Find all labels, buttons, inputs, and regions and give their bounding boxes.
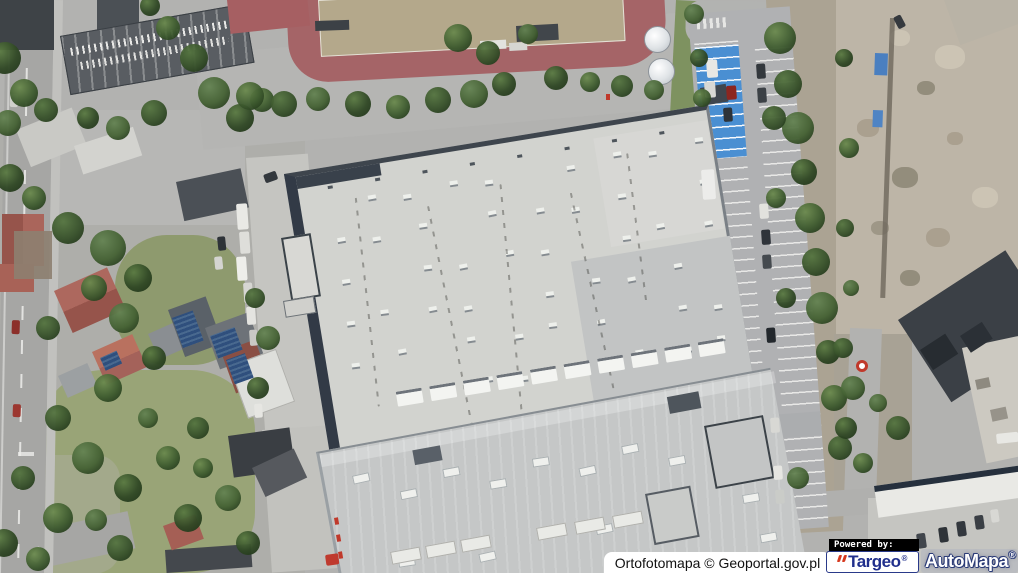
roof-vent <box>621 443 639 455</box>
car <box>773 465 783 480</box>
targeo-logo-text: Targeo <box>848 552 900 572</box>
car <box>766 327 776 343</box>
roof-vent <box>517 154 522 158</box>
roof-vent <box>352 472 371 484</box>
tree <box>795 203 825 233</box>
rubble-pile <box>926 228 950 247</box>
large-skylight <box>463 377 491 396</box>
tree <box>34 98 58 122</box>
car <box>770 417 780 433</box>
bus <box>315 20 349 31</box>
roof-skylight <box>342 279 351 286</box>
car <box>236 203 249 230</box>
tree <box>141 100 167 126</box>
roof-skylight <box>549 322 558 329</box>
tree <box>787 467 809 489</box>
tree <box>245 288 265 308</box>
storage-tank <box>644 26 671 53</box>
tree <box>236 531 260 555</box>
tree <box>802 248 830 276</box>
roof-skylight <box>515 334 524 341</box>
tree <box>853 453 873 473</box>
red-marker <box>606 94 610 100</box>
tree <box>839 138 859 158</box>
tree <box>77 107 99 129</box>
tree <box>187 417 209 439</box>
tree <box>11 466 35 490</box>
roof-vent <box>564 147 569 151</box>
tree <box>52 212 84 244</box>
car <box>254 403 263 418</box>
roof-skylight <box>622 235 631 242</box>
map-attribution: Ortofotomapa © Geoportal.gov.pl <box>604 552 831 573</box>
tree <box>236 82 264 110</box>
tree <box>869 394 887 412</box>
car <box>325 553 339 566</box>
car <box>706 59 718 78</box>
tree <box>85 509 107 531</box>
tree <box>776 288 796 308</box>
tree <box>791 159 817 185</box>
rubble-pile <box>972 187 998 208</box>
roof-skylight <box>541 249 550 256</box>
car <box>756 63 766 79</box>
roof-vent <box>375 178 380 182</box>
roof-skylight <box>449 180 458 187</box>
car <box>757 87 767 103</box>
tree <box>180 44 208 72</box>
car <box>726 85 737 100</box>
roof-vent <box>422 170 427 174</box>
automapa-registered-mark: ® <box>1009 550 1015 560</box>
tree <box>174 504 202 532</box>
tree <box>156 16 180 40</box>
roof-skylight <box>337 237 346 244</box>
tree <box>764 22 796 54</box>
tree <box>492 72 516 96</box>
roof-skylight <box>347 321 356 328</box>
tree <box>142 346 166 370</box>
roof-vent <box>759 531 777 543</box>
car <box>13 404 21 417</box>
car <box>990 509 1000 523</box>
tree <box>544 66 568 90</box>
roof-skylight <box>424 265 433 272</box>
tree <box>693 89 711 107</box>
tree <box>10 79 38 107</box>
rubble-pile <box>900 270 920 286</box>
roof-skylight <box>419 223 428 230</box>
roof-vent <box>400 488 418 500</box>
car <box>217 236 226 251</box>
roof-stain <box>355 198 380 407</box>
roof-skylight <box>398 348 407 355</box>
tree <box>460 80 488 108</box>
roof-vent <box>532 456 550 467</box>
car <box>246 306 256 325</box>
targeo-logo[interactable]: Targeo® <box>826 551 919 573</box>
tree <box>107 535 133 561</box>
roof-skylight <box>714 304 723 311</box>
rubble-pile <box>935 45 965 69</box>
tree <box>835 49 853 67</box>
tree <box>386 95 410 119</box>
tree <box>425 87 451 113</box>
tree <box>843 280 859 296</box>
car <box>12 320 20 334</box>
blue-dumpster <box>872 110 883 127</box>
roof-skylight <box>695 137 704 144</box>
tree <box>109 303 139 333</box>
car <box>236 256 248 281</box>
tree <box>138 408 158 428</box>
roof-skylight <box>648 151 657 158</box>
tree <box>690 49 708 67</box>
tree <box>774 70 802 98</box>
tree <box>256 326 280 350</box>
tree <box>580 72 600 92</box>
roof-skylight <box>613 151 622 158</box>
tree <box>247 377 269 399</box>
tree <box>886 416 910 440</box>
roof-skylight <box>592 278 601 285</box>
car <box>775 489 785 504</box>
roof-skylight <box>380 309 389 316</box>
tree <box>611 75 633 97</box>
large-skylight <box>429 382 457 401</box>
car <box>762 254 772 269</box>
tree <box>644 80 664 100</box>
roof-skylight <box>618 193 627 200</box>
car <box>723 107 733 122</box>
car <box>974 515 985 530</box>
car <box>214 256 223 270</box>
tree <box>140 0 160 16</box>
tree <box>828 436 852 460</box>
roof-vent <box>578 465 597 477</box>
rubble-pile <box>917 81 935 95</box>
roof-skylight <box>459 263 468 270</box>
targeo-registered-mark: ® <box>902 554 907 563</box>
tree <box>841 376 865 400</box>
rubble-pile <box>892 167 918 188</box>
tree <box>518 24 538 44</box>
large-skylight <box>530 366 558 385</box>
tree <box>26 547 50 571</box>
roof-vent <box>470 162 475 166</box>
automapa-logo-text: AutoMapa <box>925 551 1008 572</box>
attribution-text: Ortofotomapa © Geoportal.gov.pl <box>615 555 820 571</box>
roof-vent <box>489 478 507 490</box>
tree <box>193 458 213 478</box>
tree <box>45 405 71 431</box>
roof-skylight <box>428 306 437 313</box>
tree <box>72 442 104 474</box>
roof-skylight <box>536 207 545 214</box>
tree <box>782 112 814 144</box>
tree <box>762 106 786 130</box>
tree <box>835 417 857 439</box>
car <box>761 229 771 245</box>
tree <box>766 188 786 208</box>
roof-skylight <box>546 291 555 298</box>
roof-skylight <box>485 180 494 187</box>
roof-skylight <box>488 210 497 217</box>
automapa-logo[interactable]: AutoMapa® <box>921 549 1018 573</box>
scaffold-structure <box>14 231 52 279</box>
roof-skylight <box>403 194 412 201</box>
roof-vent <box>442 466 460 478</box>
roof-skylight <box>679 305 688 312</box>
car <box>239 231 251 254</box>
stop-line <box>18 452 34 456</box>
tree <box>36 316 60 340</box>
tree <box>836 219 854 237</box>
roof-vent <box>742 492 760 504</box>
roof-skylight <box>467 336 476 343</box>
rubble-pile <box>947 132 963 145</box>
tree <box>306 87 330 111</box>
loading-dock <box>704 415 775 489</box>
tree <box>106 116 130 140</box>
tree <box>806 292 838 324</box>
roof-skylight <box>368 194 377 201</box>
car <box>956 521 967 537</box>
roof-skylight <box>352 363 361 370</box>
tree <box>43 503 73 533</box>
targeo-logo-mark-icon <box>838 555 847 562</box>
aerial-photo-scene <box>0 0 1018 573</box>
loading-dock <box>645 486 700 546</box>
roof-vent <box>668 455 686 467</box>
tree <box>114 474 142 502</box>
map-canvas[interactable]: Ortofotomapa © Geoportal.gov.pl Powered … <box>0 0 1018 573</box>
tree <box>444 24 472 52</box>
tree <box>156 446 180 470</box>
roof-vent <box>478 550 497 562</box>
large-skylight <box>396 388 424 407</box>
tree <box>198 77 230 109</box>
car <box>701 169 716 200</box>
tree <box>90 230 126 266</box>
roundabout-sign <box>856 360 868 372</box>
roof-skylight <box>566 165 575 172</box>
roof-vent <box>328 185 333 189</box>
car <box>938 527 949 543</box>
roof-skylight <box>372 236 381 243</box>
large-skylight <box>563 360 591 379</box>
powered-by-label: Powered by: <box>829 539 919 551</box>
roof-skylight <box>464 305 473 312</box>
tree <box>94 374 122 402</box>
car <box>759 203 769 219</box>
tree <box>833 338 853 358</box>
blue-dumpster <box>874 53 888 75</box>
tree <box>22 186 46 210</box>
tree <box>271 91 297 117</box>
tree <box>476 41 500 65</box>
industrial-building-light <box>962 336 1018 463</box>
tree <box>124 264 152 292</box>
tree <box>684 4 704 24</box>
tree <box>81 275 107 301</box>
tree <box>215 485 241 511</box>
tree <box>345 91 371 117</box>
